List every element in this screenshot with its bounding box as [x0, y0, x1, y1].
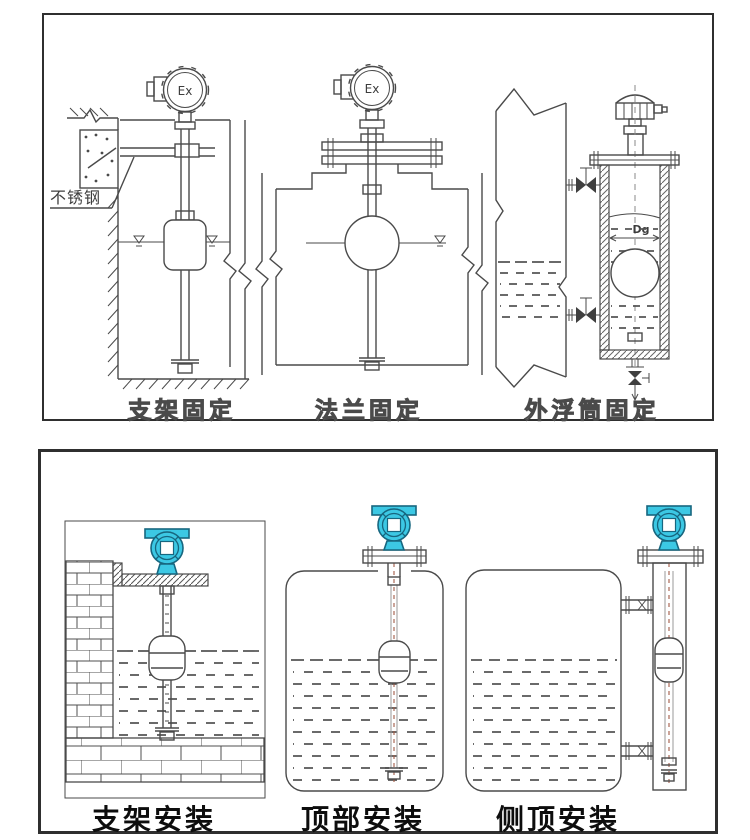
transmitter-head-icon — [145, 529, 189, 574]
figure-caption: 顶部安装 — [253, 798, 473, 838]
pipe-valve-icon — [621, 596, 653, 614]
liquid-level-drawing — [471, 660, 617, 780]
figure-caption: 外浮筒固定 — [492, 391, 692, 425]
figure-caption: 侧顶安装 — [448, 798, 668, 838]
transmitter-head-icon — [647, 506, 691, 550]
side-top-installation-drawing — [466, 506, 703, 791]
pipe-valve-icon — [621, 742, 653, 760]
fixing-methods-art: Ex — [44, 15, 710, 417]
figure-caption: 支架安装 — [44, 798, 264, 838]
ex-head-drawing: Ex — [162, 67, 209, 114]
float-level-gauge-installation-diagram: Ex — [0, 0, 750, 840]
fixing-methods-panel: Ex — [42, 13, 714, 421]
transmitter-head-icon — [372, 506, 416, 550]
float-drawing — [164, 220, 206, 270]
ex-marking: Ex — [178, 84, 193, 98]
transmitter-head-drawing — [616, 95, 667, 155]
float-drawing — [149, 636, 185, 680]
liquid-level-drawing — [117, 651, 261, 735]
float-drawing — [379, 641, 410, 683]
figure-caption: 支架固定 — [82, 391, 282, 425]
float-drawing — [655, 638, 683, 682]
valve-icon — [566, 298, 600, 323]
flange-fixing-drawing: Ex — [256, 65, 488, 376]
ex-head-drawing: Ex — [349, 65, 396, 112]
liquid-level-drawing — [498, 262, 562, 317]
valve-icon — [566, 168, 600, 193]
figure-caption: 法兰固定 — [269, 391, 469, 425]
process-vessel-drawing — [496, 89, 566, 387]
material-label: 不锈钢 — [50, 188, 101, 207]
installation-methods-panel: 支架安装 顶部安装 侧顶安装 — [38, 449, 718, 834]
bracket-installation-drawing — [65, 521, 265, 798]
diameter-dimension: Dg — [610, 223, 659, 241]
float-drawing — [345, 216, 399, 270]
float-chamber-drawing — [653, 563, 686, 790]
installation-methods-art — [41, 452, 715, 831]
top-installation-drawing — [286, 506, 443, 791]
float-chamber-drawing: Dg — [590, 85, 679, 403]
float-drawing — [611, 249, 659, 297]
liquid-level-drawing — [291, 660, 438, 780]
bracket-fixing-drawing: Ex — [50, 67, 251, 390]
ex-marking: Ex — [365, 82, 380, 96]
external-chamber-fixing-drawing: Dg — [496, 85, 679, 403]
flange-drawing — [322, 134, 442, 168]
